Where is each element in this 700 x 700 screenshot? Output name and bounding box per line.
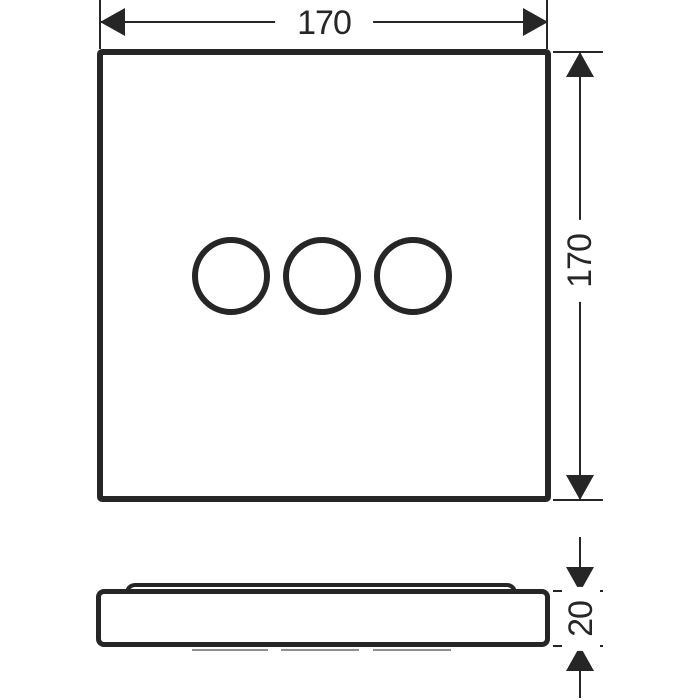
thickness-dimension-line-lower — [579, 671, 581, 698]
technical-drawing-canvas: 170 170 20 — [0, 0, 700, 700]
thickness-dimension-label: 20 — [562, 587, 600, 651]
control-opening-circle-1 — [192, 237, 270, 315]
width-dimension-label: 170 — [275, 4, 373, 42]
height-arrow-down-icon — [566, 475, 594, 500]
width-arrow-right-icon — [523, 8, 548, 36]
control-opening-circle-2 — [283, 237, 361, 315]
side-view-rosette-edge-3 — [373, 649, 451, 651]
height-dimension-label: 170 — [561, 220, 599, 302]
side-view-rosette-edge-2 — [281, 649, 359, 651]
side-view-plate-body — [96, 589, 550, 647]
width-arrow-left-icon — [100, 8, 125, 36]
control-opening-circle-3 — [374, 237, 452, 315]
height-arrow-up-icon — [566, 52, 594, 77]
side-view-rosette-edge-1 — [192, 649, 268, 651]
thickness-dimension-line-upper — [579, 537, 581, 571]
